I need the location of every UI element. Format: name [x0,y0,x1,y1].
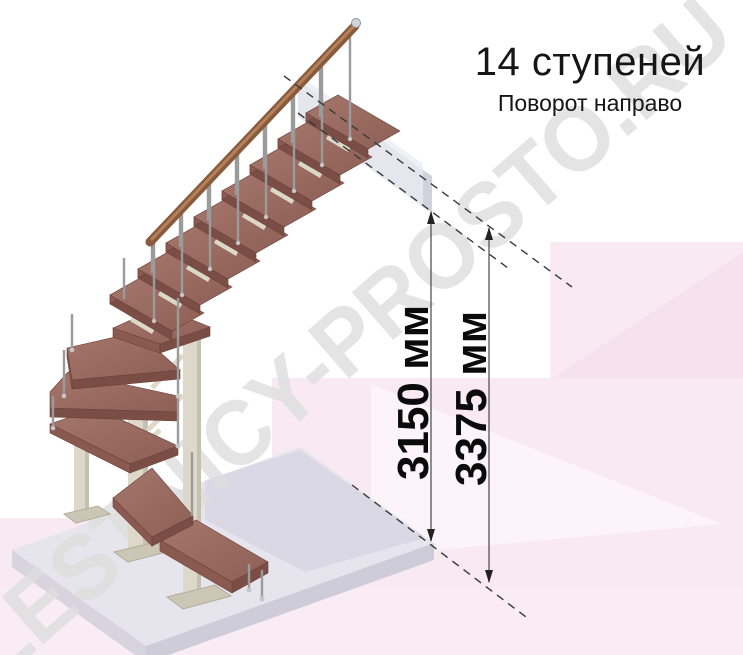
dimension-label-3150: 3150 мм [389,305,438,480]
dimension-label-3375: 3375 мм [447,311,496,486]
page-subtitle: Поворот направо [420,91,743,116]
handrail-cap [352,19,361,28]
diagram-page: LESTNICY-PROSTO.RU [0,0,743,655]
caption-block: 14 ступеней Поворот направо [420,40,743,116]
page-title: 14 ступеней [420,40,743,84]
